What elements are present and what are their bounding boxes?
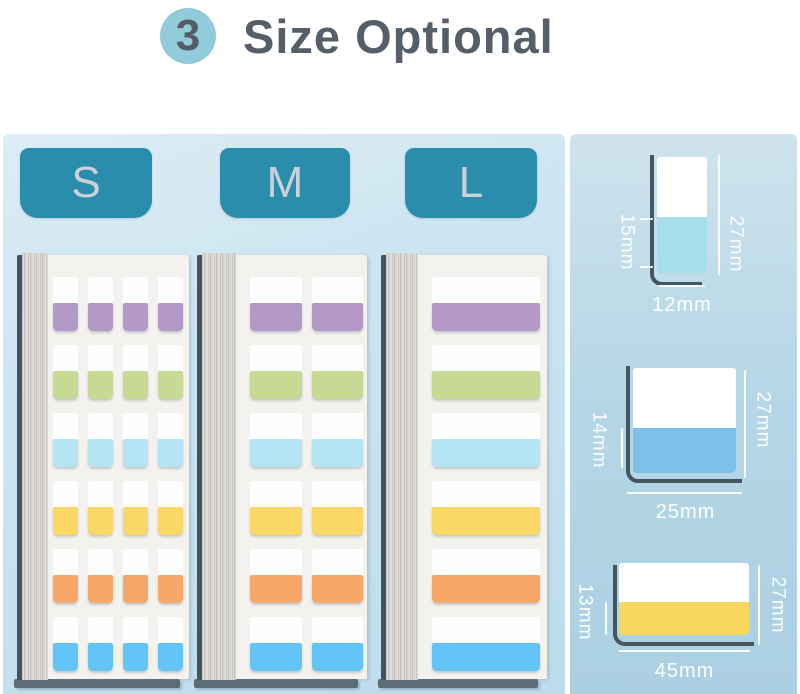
sticky-tab-white-part xyxy=(123,345,148,371)
sticky-tab-yellow xyxy=(432,481,540,535)
sticky-tab-white-part xyxy=(312,549,364,575)
tab-row-purple xyxy=(250,277,363,331)
diagram-l-tab-white xyxy=(619,563,749,602)
sticky-tab-purple xyxy=(432,277,540,331)
sticky-tab-orange xyxy=(53,549,78,603)
sticky-tab-white-part xyxy=(123,617,148,643)
sticky-tab-color-part xyxy=(432,643,540,671)
count-badge: 3 xyxy=(160,8,216,64)
sticky-tab-white-part xyxy=(158,549,183,575)
diagram-s-tab-height-label: 15mm xyxy=(612,186,640,298)
sticky-tab-color-part xyxy=(312,643,364,671)
sticky-tab-purple xyxy=(123,277,148,331)
sticky-tab-purple xyxy=(53,277,78,331)
sticky-tab-purple xyxy=(312,277,364,331)
tab-row-green xyxy=(432,345,540,399)
sizes-panel: S M L xyxy=(3,134,565,694)
sticky-tab-white-part xyxy=(88,549,113,575)
sticky-tab-color-part xyxy=(53,439,78,467)
diagram-l-tab-height-line xyxy=(605,602,607,635)
sticky-tab-color-part xyxy=(123,439,148,467)
diagram-m-height-line xyxy=(744,370,746,478)
sticky-tab-color-part xyxy=(53,643,78,671)
sticky-tab-green xyxy=(88,345,113,399)
diagram-s-tab-white xyxy=(657,157,707,217)
sticky-tab-white-part xyxy=(158,617,183,643)
sticky-tab-cyan xyxy=(123,413,148,467)
tab-row-cyan xyxy=(432,413,540,467)
diagram-l-width-label: 45mm xyxy=(612,660,757,683)
sticky-tab-green xyxy=(123,345,148,399)
tab-row-orange xyxy=(432,549,540,603)
sticky-tab-orange xyxy=(250,549,302,603)
dimensions-panel: 27mm 15mm 12mm 14mm 27mm 25mm 13mm 27mm … xyxy=(570,134,797,694)
tab-row-purple xyxy=(53,277,183,331)
sticky-tab-yellow xyxy=(158,481,183,535)
diagram-s-tab-color xyxy=(657,217,707,273)
sticky-tab-white-part xyxy=(432,617,540,643)
diagram-l-tab xyxy=(619,563,749,635)
sticky-tab-color-part xyxy=(312,507,364,535)
sticky-tab-white-part xyxy=(123,413,148,439)
sticky-tab-color-part xyxy=(123,575,148,603)
sticky-tab-color-part xyxy=(312,439,364,467)
sticky-tab-color-part xyxy=(250,303,302,331)
sticky-tab-white-part xyxy=(250,481,302,507)
count-badge-number: 3 xyxy=(176,11,200,61)
sticky-tab-white-part xyxy=(312,277,364,303)
diagram-s-width-label: 12mm xyxy=(632,294,732,317)
sticky-tab-yellow xyxy=(250,481,302,535)
sticky-tab-yellow xyxy=(53,481,78,535)
sticky-tab-white-part xyxy=(158,277,183,303)
tab-row-yellow xyxy=(250,481,363,535)
sticky-tab-color-part xyxy=(312,575,364,603)
sticky-tab-color-part xyxy=(432,575,540,603)
sticky-tab-color-part xyxy=(88,507,113,535)
sticky-tab-color-part xyxy=(250,371,302,399)
diagram-l-width-line xyxy=(619,650,750,652)
booklet-sheet xyxy=(418,255,547,679)
sticky-tab-cyan xyxy=(312,413,364,467)
sticky-tab-white-part xyxy=(432,413,540,439)
sticky-tab-color-part xyxy=(158,303,183,331)
sticky-tab-color-part xyxy=(123,371,148,399)
diagram-l-tab-height-label: 13mm xyxy=(570,556,598,668)
sticky-tab-color-part xyxy=(250,643,302,671)
tab-booklet-s xyxy=(17,253,189,688)
booklet-base xyxy=(194,679,358,688)
diagram-s-total-height-label: 27mm xyxy=(720,184,750,304)
sticky-tab-white-part xyxy=(432,549,540,575)
diagram-m-tab-height-label: 14mm xyxy=(584,384,612,496)
sticky-tab-blue xyxy=(312,617,364,671)
sticky-tab-color-part xyxy=(312,371,364,399)
tab-grid xyxy=(236,255,367,679)
sticky-tab-color-part xyxy=(250,575,302,603)
size-tab-s: S xyxy=(20,148,152,218)
tab-row-green xyxy=(53,345,183,399)
booklet-sheet xyxy=(236,255,367,679)
diagram-m-width-line xyxy=(627,492,742,494)
sticky-tab-orange xyxy=(88,549,113,603)
diagram-m-total-height-label: 27mm xyxy=(747,364,777,476)
booklet-base xyxy=(14,679,180,688)
booklet-spine xyxy=(22,253,48,680)
diagram-m-tab-color xyxy=(633,428,736,473)
booklet-base xyxy=(378,679,538,688)
diagram-s-width-line xyxy=(658,285,705,287)
tab-row-blue xyxy=(53,617,183,671)
sticky-tab-blue xyxy=(250,617,302,671)
diagram-s-tab xyxy=(657,157,707,273)
sticky-tab-white-part xyxy=(312,481,364,507)
tab-row-cyan xyxy=(250,413,363,467)
sticky-tab-cyan xyxy=(53,413,78,467)
sticky-tab-white-part xyxy=(312,617,364,643)
size-tab-l: L xyxy=(405,148,537,218)
sticky-tab-green xyxy=(158,345,183,399)
sticky-tab-white-part xyxy=(53,549,78,575)
diagram-s-tick xyxy=(640,218,653,220)
tab-grid xyxy=(418,255,547,679)
sticky-tab-cyan xyxy=(250,413,302,467)
sticky-tab-white-part xyxy=(88,345,113,371)
sticky-tab-color-part xyxy=(123,643,148,671)
sticky-tab-white-part xyxy=(250,549,302,575)
sticky-tab-white-part xyxy=(158,413,183,439)
diagram-m-tab-white xyxy=(633,368,736,428)
sticky-tab-white-part xyxy=(158,345,183,371)
sticky-tab-white-part xyxy=(53,413,78,439)
sticky-tab-color-part xyxy=(250,507,302,535)
tab-row-purple xyxy=(432,277,540,331)
booklet-sheet xyxy=(48,255,189,679)
sticky-tab-purple xyxy=(88,277,113,331)
booklet-spine xyxy=(386,253,418,680)
sticky-tab-white-part xyxy=(250,413,302,439)
sticky-tab-white-part xyxy=(53,481,78,507)
sticky-tab-color-part xyxy=(158,643,183,671)
sticky-tab-color-part xyxy=(88,371,113,399)
sticky-tab-color-part xyxy=(53,575,78,603)
sticky-tab-orange xyxy=(123,549,148,603)
diagram-l-height-line xyxy=(758,565,760,645)
sticky-tab-color-part xyxy=(88,643,113,671)
tab-row-green xyxy=(250,345,363,399)
tab-row-orange xyxy=(53,549,183,603)
diagram-l-total-height-label: 27mm xyxy=(762,549,792,661)
diagram-s-tick xyxy=(640,266,653,268)
sticky-tab-color-part xyxy=(158,371,183,399)
sticky-tab-green xyxy=(250,345,302,399)
sticky-tab-white-part xyxy=(312,345,364,371)
sticky-tab-white-part xyxy=(88,277,113,303)
sticky-tab-blue xyxy=(158,617,183,671)
page-title: Size Optional xyxy=(243,9,554,64)
sticky-tab-white-part xyxy=(432,481,540,507)
sticky-tab-white-part xyxy=(123,549,148,575)
sticky-tab-color-part xyxy=(158,439,183,467)
sticky-tab-color-part xyxy=(123,507,148,535)
sticky-tab-blue xyxy=(53,617,78,671)
sticky-tab-white-part xyxy=(88,617,113,643)
sticky-tab-orange xyxy=(312,549,364,603)
sticky-tab-color-part xyxy=(432,303,540,331)
sticky-tab-color-part xyxy=(158,507,183,535)
sticky-tab-yellow xyxy=(123,481,148,535)
sticky-tab-orange xyxy=(158,549,183,603)
sticky-tab-orange xyxy=(432,549,540,603)
tab-row-blue xyxy=(432,617,540,671)
sticky-tab-cyan xyxy=(88,413,113,467)
tab-row-orange xyxy=(250,549,363,603)
sticky-tab-yellow xyxy=(88,481,113,535)
sticky-tab-green xyxy=(432,345,540,399)
sticky-tab-blue xyxy=(123,617,148,671)
sticky-tab-color-part xyxy=(250,439,302,467)
sticky-tab-blue xyxy=(432,617,540,671)
sticky-tab-white-part xyxy=(53,617,78,643)
sticky-tab-color-part xyxy=(432,439,540,467)
diagram-m-width-label: 25mm xyxy=(623,501,748,524)
sticky-tab-white-part xyxy=(53,345,78,371)
sticky-tab-white-part xyxy=(432,277,540,303)
sticky-tab-cyan xyxy=(158,413,183,467)
sticky-tab-white-part xyxy=(250,345,302,371)
diagram-l-tab-color xyxy=(619,602,749,635)
sticky-tab-color-part xyxy=(123,303,148,331)
size-tab-m: M xyxy=(220,148,350,218)
sticky-tab-color-part xyxy=(158,575,183,603)
tab-row-yellow xyxy=(432,481,540,535)
sticky-tab-color-part xyxy=(432,507,540,535)
sticky-tab-color-part xyxy=(53,371,78,399)
sticky-tab-purple xyxy=(250,277,302,331)
tab-row-cyan xyxy=(53,413,183,467)
booklet-spine xyxy=(202,253,236,680)
sticky-tab-yellow xyxy=(312,481,364,535)
sticky-tab-white-part xyxy=(123,277,148,303)
diagram-m-tab-height-line xyxy=(621,428,623,468)
sticky-tab-white-part xyxy=(158,481,183,507)
sticky-tab-white-part xyxy=(250,617,302,643)
sticky-tab-color-part xyxy=(88,439,113,467)
sticky-tab-color-part xyxy=(312,303,364,331)
tab-row-blue xyxy=(250,617,363,671)
tab-booklet-l xyxy=(381,253,547,688)
sticky-tab-blue xyxy=(88,617,113,671)
sticky-tab-white-part xyxy=(250,277,302,303)
sticky-tab-green xyxy=(53,345,78,399)
tab-row-yellow xyxy=(53,481,183,535)
sticky-tab-color-part xyxy=(88,575,113,603)
sticky-tab-white-part xyxy=(123,481,148,507)
sticky-tab-color-part xyxy=(88,303,113,331)
sticky-tab-white-part xyxy=(53,277,78,303)
sticky-tab-white-part xyxy=(88,481,113,507)
sticky-tab-color-part xyxy=(432,371,540,399)
tab-booklet-m xyxy=(197,253,367,688)
sticky-tab-white-part xyxy=(312,413,364,439)
sticky-tab-green xyxy=(312,345,364,399)
sticky-tab-cyan xyxy=(432,413,540,467)
sticky-tab-purple xyxy=(158,277,183,331)
tab-grid xyxy=(48,255,189,679)
sticky-tab-color-part xyxy=(53,303,78,331)
sticky-tab-color-part xyxy=(53,507,78,535)
diagram-m-tab xyxy=(633,368,736,473)
sticky-tab-white-part xyxy=(88,413,113,439)
sticky-tab-white-part xyxy=(432,345,540,371)
